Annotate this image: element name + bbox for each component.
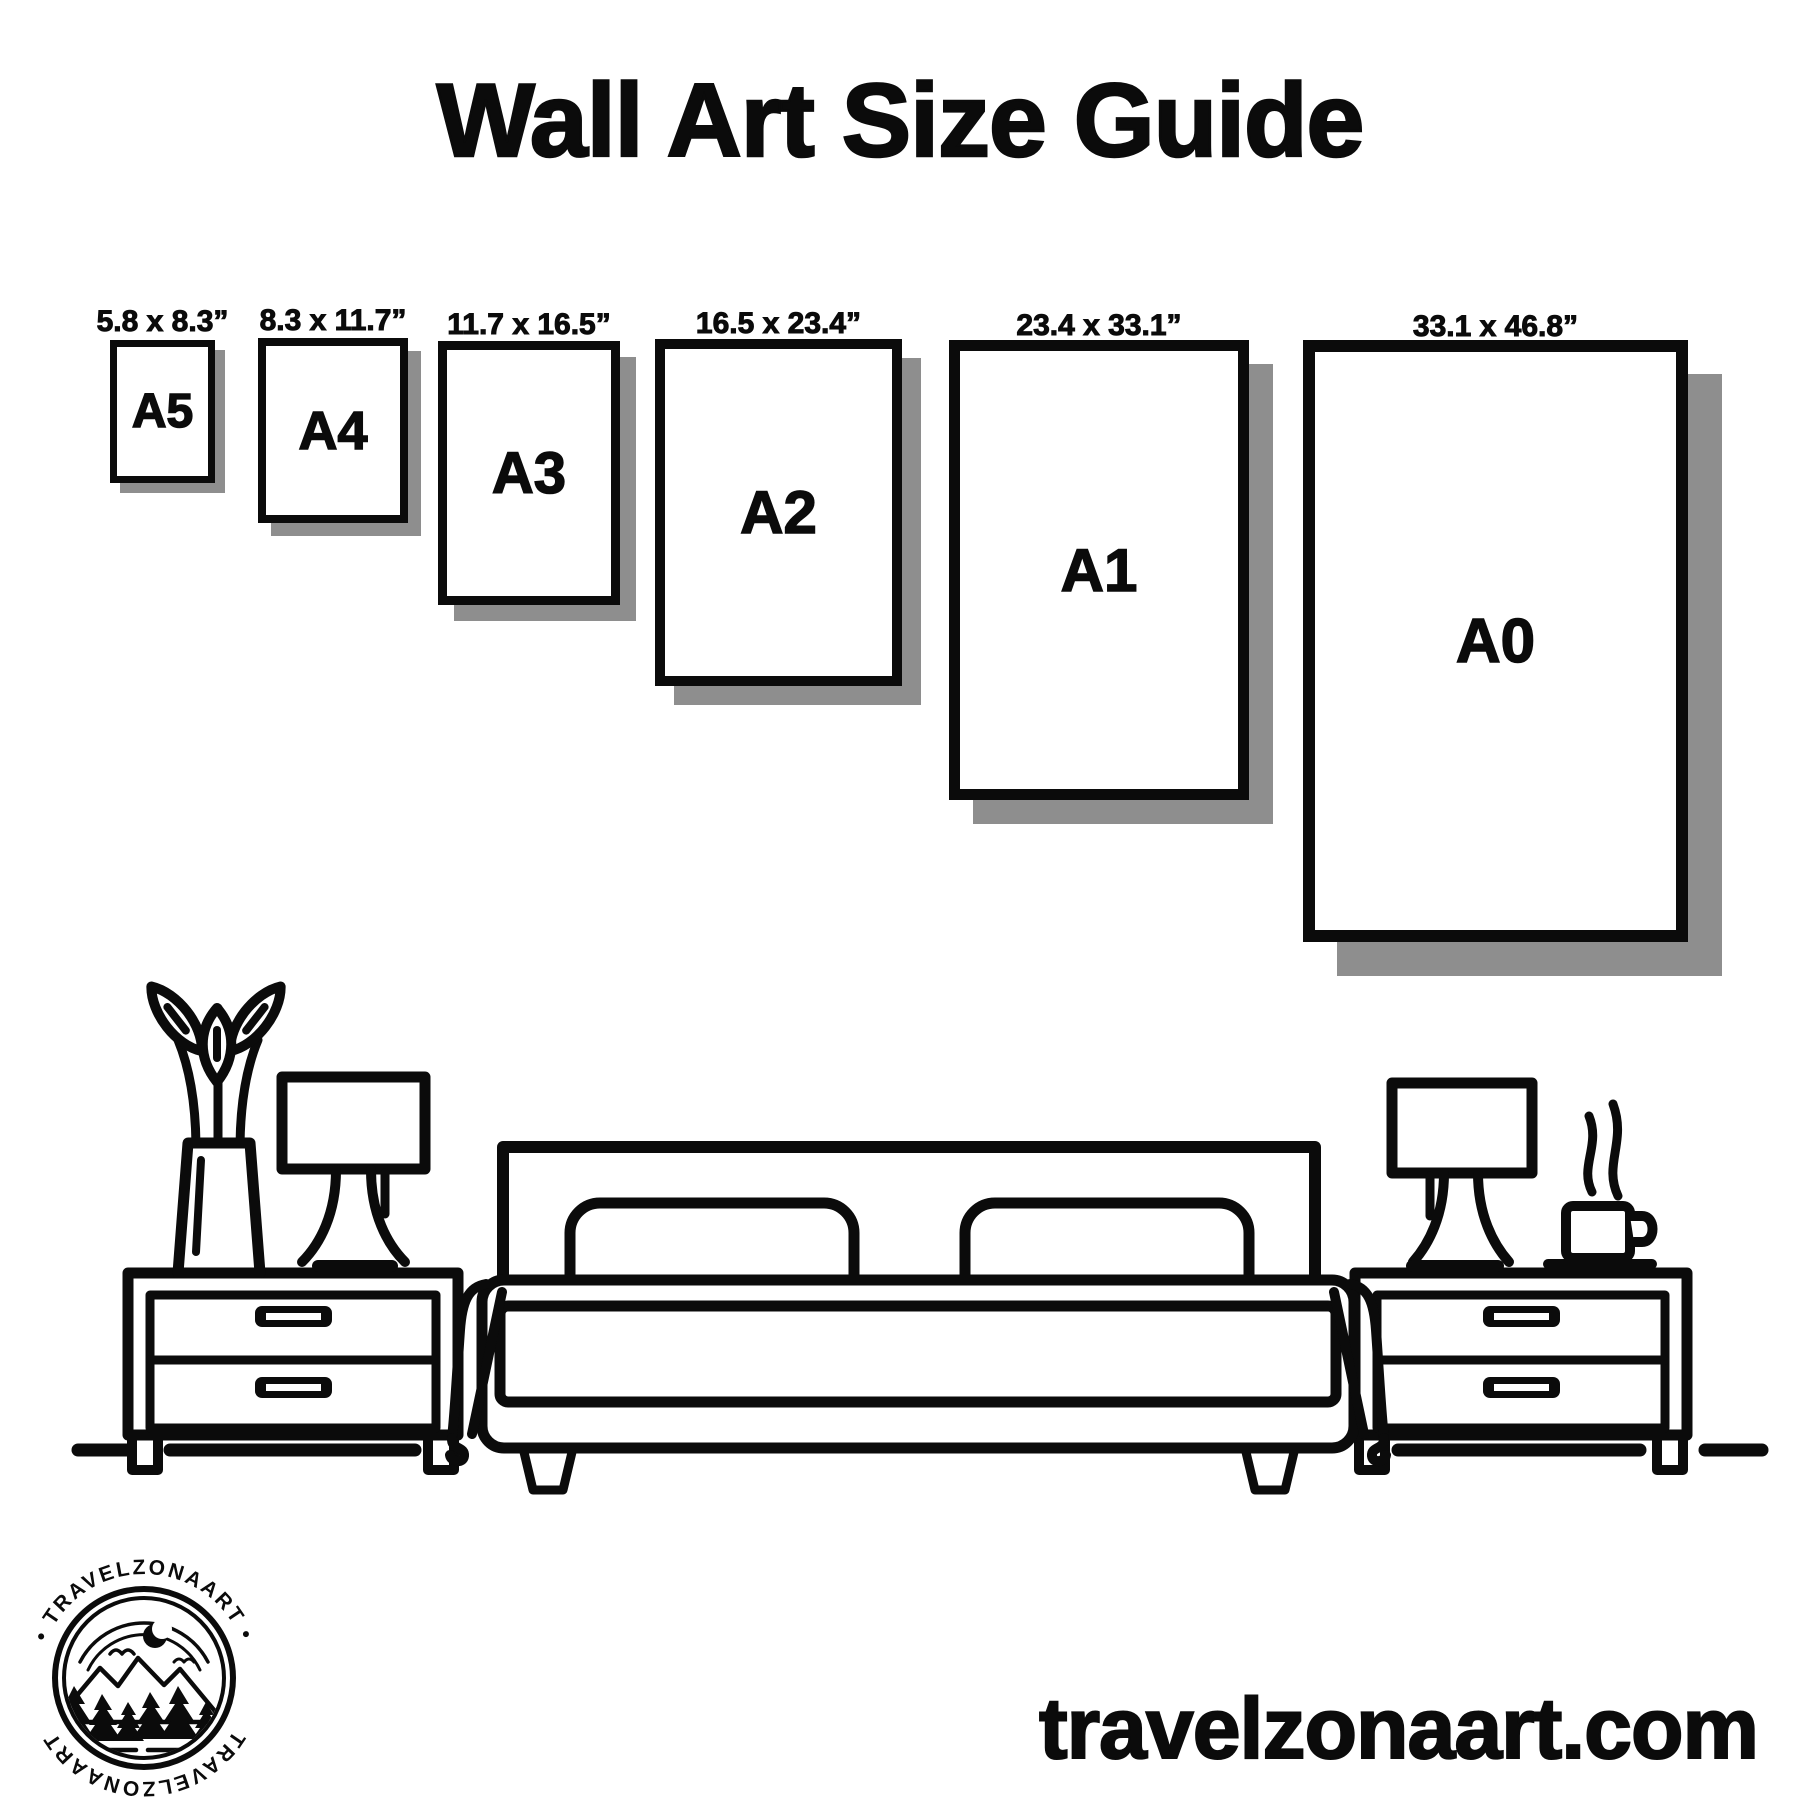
website-url: travelzonaart.com	[1039, 1686, 1758, 1772]
plant-icon	[141, 979, 290, 1273]
paper-size-box-a1: 23.4 x 33.1”A1	[949, 340, 1249, 800]
page-title: Wall Art Size Guide	[0, 62, 1800, 182]
paper-size-name: A0	[1456, 606, 1535, 677]
paper-size-box-a0: 33.1 x 46.8”A0	[1303, 340, 1688, 942]
bird-icon	[110, 1650, 134, 1654]
bedroom-scene-illustration	[0, 960, 1800, 1540]
table-lamp-left-icon	[282, 1077, 425, 1266]
paper-size-name: A4	[298, 400, 367, 462]
steam-icon	[1613, 1104, 1618, 1196]
logo-badge-icon: • TRAVELZONAART • TRAVELZONAART	[24, 1558, 264, 1798]
paper-size-box-a4: 8.3 x 11.7”A4	[258, 338, 408, 523]
size-dimensions-label: 11.7 x 16.5”	[447, 308, 610, 342]
coffee-mug-icon	[1548, 1104, 1653, 1264]
wall-art-size-guide-infographic: Wall Art Size Guide 5.8 x 8.3”A58.3 x 11…	[0, 0, 1800, 1800]
paper-size-name: A5	[132, 384, 193, 439]
size-dimensions-label: 23.4 x 33.1”	[1016, 309, 1181, 343]
bed-icon	[450, 1147, 1386, 1490]
vase-icon	[178, 1143, 260, 1273]
paper-size-name: A2	[740, 478, 817, 547]
nightstand-right-icon	[1355, 1273, 1687, 1470]
size-dimensions-label: 5.8 x 8.3”	[97, 305, 229, 339]
paper-size-name: A1	[1061, 536, 1138, 605]
table-lamp-right-icon	[1392, 1083, 1532, 1266]
bird-icon	[174, 1659, 194, 1662]
size-dimensions-label: 16.5 x 23.4”	[696, 307, 861, 341]
paper-size-box-a3: 11.7 x 16.5”A3	[438, 341, 620, 605]
paper-size-box-a2: 16.5 x 23.4”A2	[655, 339, 902, 686]
paper-size-box-a5: 5.8 x 8.3”A5	[110, 340, 215, 483]
paper-size-name: A3	[492, 440, 566, 507]
steam-icon	[1588, 1116, 1593, 1192]
size-dimensions-label: 8.3 x 11.7”	[260, 304, 407, 338]
size-dimensions-label: 33.1 x 46.8”	[1413, 310, 1578, 344]
nightstand-left-icon	[128, 1273, 458, 1470]
